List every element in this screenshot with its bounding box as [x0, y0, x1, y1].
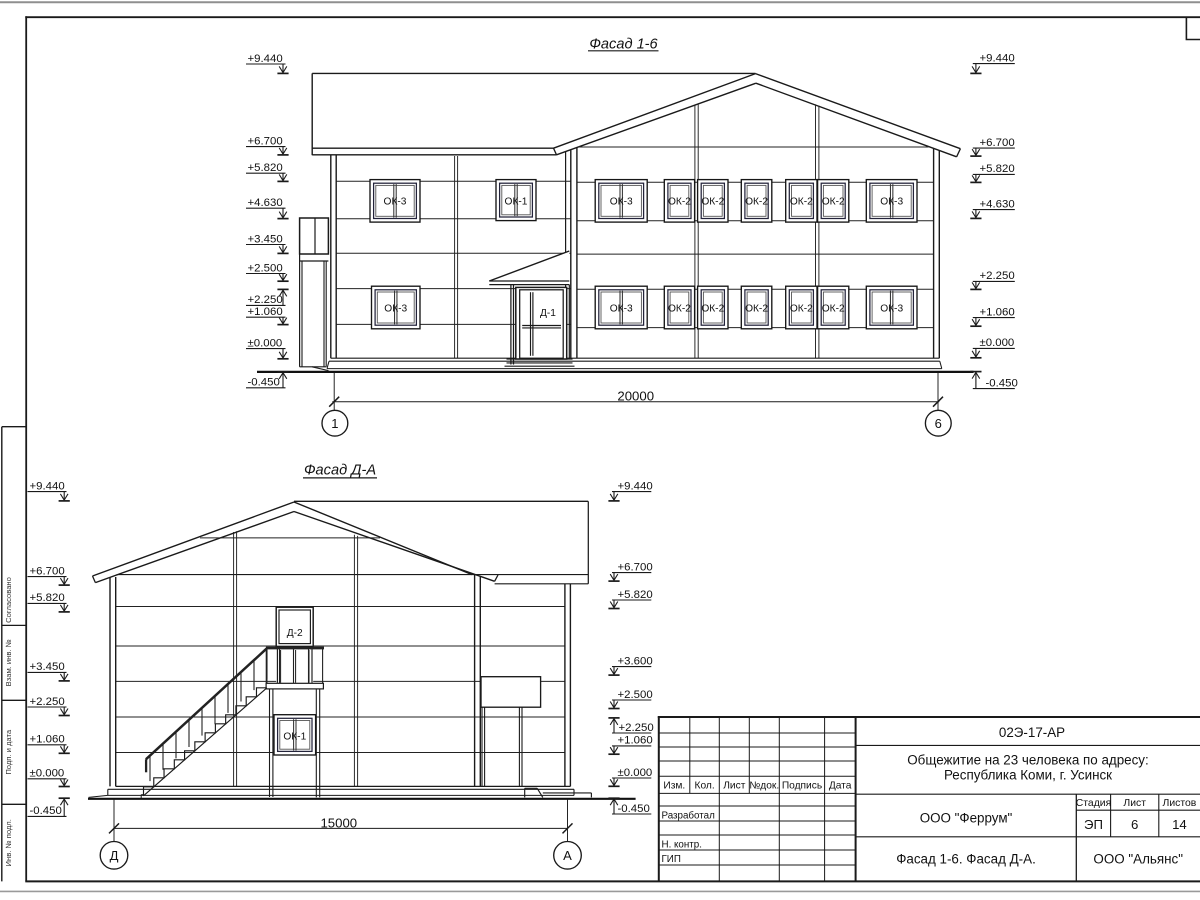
svg-text:+5.820: +5.820	[30, 592, 65, 604]
svg-text:Н. контр.: Н. контр.	[662, 839, 702, 850]
svg-text:ГИП: ГИП	[662, 854, 681, 865]
svg-text:Дата: Дата	[829, 781, 852, 792]
svg-text:-0.450: -0.450	[986, 377, 1018, 389]
svg-text:+1.060: +1.060	[980, 306, 1015, 318]
svg-text:02Э-17-АР: 02Э-17-АР	[999, 725, 1065, 740]
svg-text:ООО "Феррум": ООО "Феррум"	[920, 811, 1013, 826]
svg-text:-0.450: -0.450	[618, 803, 650, 815]
svg-text:Общежитие на 23 человека по ад: Общежитие на 23 человека по адресу:	[907, 752, 1148, 767]
svg-text:Инв. № подл.: Инв. № подл.	[4, 819, 13, 866]
svg-text:Республика Коми, г. Усинск: Республика Коми, г. Усинск	[944, 767, 1112, 782]
svg-text:+9.440: +9.440	[248, 53, 283, 65]
svg-text:Подп. и дата: Подп. и дата	[4, 729, 13, 775]
svg-text:ОК-1: ОК-1	[505, 197, 528, 208]
svg-text:1: 1	[331, 416, 338, 431]
svg-text:№док.: №док.	[749, 781, 779, 792]
svg-text:+3.450: +3.450	[248, 233, 283, 245]
svg-text:ЭП: ЭП	[1084, 817, 1103, 832]
svg-text:А: А	[563, 848, 572, 863]
svg-text:+3.450: +3.450	[30, 661, 65, 673]
svg-text:Кол.: Кол.	[695, 781, 715, 792]
svg-text:±0.000: ±0.000	[248, 337, 283, 349]
svg-text:ОК-2: ОК-2	[701, 197, 724, 208]
svg-text:Лист: Лист	[1123, 798, 1146, 809]
svg-text:+3.600: +3.600	[618, 655, 653, 667]
svg-text:+6.700: +6.700	[248, 135, 283, 147]
svg-text:-0.450: -0.450	[248, 377, 280, 389]
svg-text:ОК-3: ОК-3	[384, 197, 407, 208]
svg-text:6: 6	[935, 416, 942, 431]
svg-text:+9.440: +9.440	[30, 480, 65, 492]
svg-text:+2.500: +2.500	[248, 262, 283, 274]
svg-text:+6.700: +6.700	[30, 565, 65, 577]
svg-text:ООО "Альянс": ООО "Альянс"	[1093, 851, 1183, 866]
svg-text:+1.060: +1.060	[618, 735, 653, 747]
svg-text:Д-2: Д-2	[287, 628, 303, 639]
svg-text:+6.700: +6.700	[618, 561, 653, 573]
svg-text:Согласовано: Согласовано	[4, 577, 13, 623]
svg-text:+5.820: +5.820	[618, 589, 653, 601]
svg-text:Изм.: Изм.	[663, 781, 685, 792]
svg-text:ОК-2: ОК-2	[822, 303, 845, 314]
svg-text:+2.500: +2.500	[618, 689, 653, 701]
svg-text:Листов: Листов	[1163, 798, 1197, 809]
svg-text:Д: Д	[110, 848, 119, 863]
svg-text:Фасад Д-А: Фасад Д-А	[304, 462, 376, 478]
svg-text:ОК-3: ОК-3	[384, 303, 407, 314]
svg-text:±0.000: ±0.000	[618, 767, 653, 779]
svg-text:Д-1: Д-1	[540, 308, 556, 319]
svg-text:15000: 15000	[320, 815, 357, 830]
svg-text:14: 14	[1172, 817, 1187, 832]
svg-text:+5.820: +5.820	[980, 163, 1015, 175]
svg-text:ОК-3: ОК-3	[610, 303, 633, 314]
svg-text:Фасад 1-6: Фасад 1-6	[589, 36, 658, 52]
svg-text:Фасад 1-6. Фасад Д-А.: Фасад 1-6. Фасад Д-А.	[896, 851, 1036, 866]
svg-text:ОК-1: ОК-1	[283, 732, 306, 743]
svg-text:Взам. инв. №: Взам. инв. №	[4, 639, 13, 686]
svg-text:Подпись: Подпись	[782, 781, 822, 792]
svg-text:+5.820: +5.820	[248, 162, 283, 174]
svg-text:-0.450: -0.450	[30, 805, 62, 817]
svg-text:+1.060: +1.060	[30, 734, 65, 746]
svg-text:+4.630: +4.630	[248, 197, 283, 209]
svg-text:ОК-2: ОК-2	[822, 197, 845, 208]
svg-text:ОК-2: ОК-2	[745, 303, 768, 314]
svg-text:+1.060: +1.060	[248, 306, 283, 318]
svg-text:±0.000: ±0.000	[30, 768, 65, 780]
svg-text:ОК-2: ОК-2	[790, 303, 813, 314]
svg-text:ОК-2: ОК-2	[745, 197, 768, 208]
svg-text:ОК-2: ОК-2	[668, 197, 691, 208]
svg-text:+2.250: +2.250	[30, 696, 65, 708]
svg-text:±0.000: ±0.000	[980, 337, 1015, 349]
svg-text:Стадия: Стадия	[1076, 798, 1111, 809]
svg-text:ОК-2: ОК-2	[668, 303, 691, 314]
svg-text:20000: 20000	[617, 389, 654, 404]
svg-text:ОК-3: ОК-3	[880, 303, 903, 314]
svg-text:Разработал: Разработал	[662, 811, 716, 822]
svg-text:6: 6	[1131, 817, 1138, 832]
svg-text:+9.440: +9.440	[618, 480, 653, 492]
svg-text:ОК-2: ОК-2	[790, 197, 813, 208]
svg-text:+2.250: +2.250	[980, 270, 1015, 282]
svg-text:+9.440: +9.440	[980, 52, 1015, 64]
svg-text:+4.630: +4.630	[980, 198, 1015, 210]
svg-text:ОК-2: ОК-2	[701, 303, 724, 314]
svg-text:+2.250: +2.250	[248, 294, 283, 306]
svg-text:Лист: Лист	[723, 781, 745, 792]
svg-text:+2.250: +2.250	[619, 722, 654, 734]
svg-text:ОК-3: ОК-3	[610, 197, 633, 208]
svg-text:ОК-3: ОК-3	[880, 197, 903, 208]
svg-text:+6.700: +6.700	[980, 137, 1015, 149]
